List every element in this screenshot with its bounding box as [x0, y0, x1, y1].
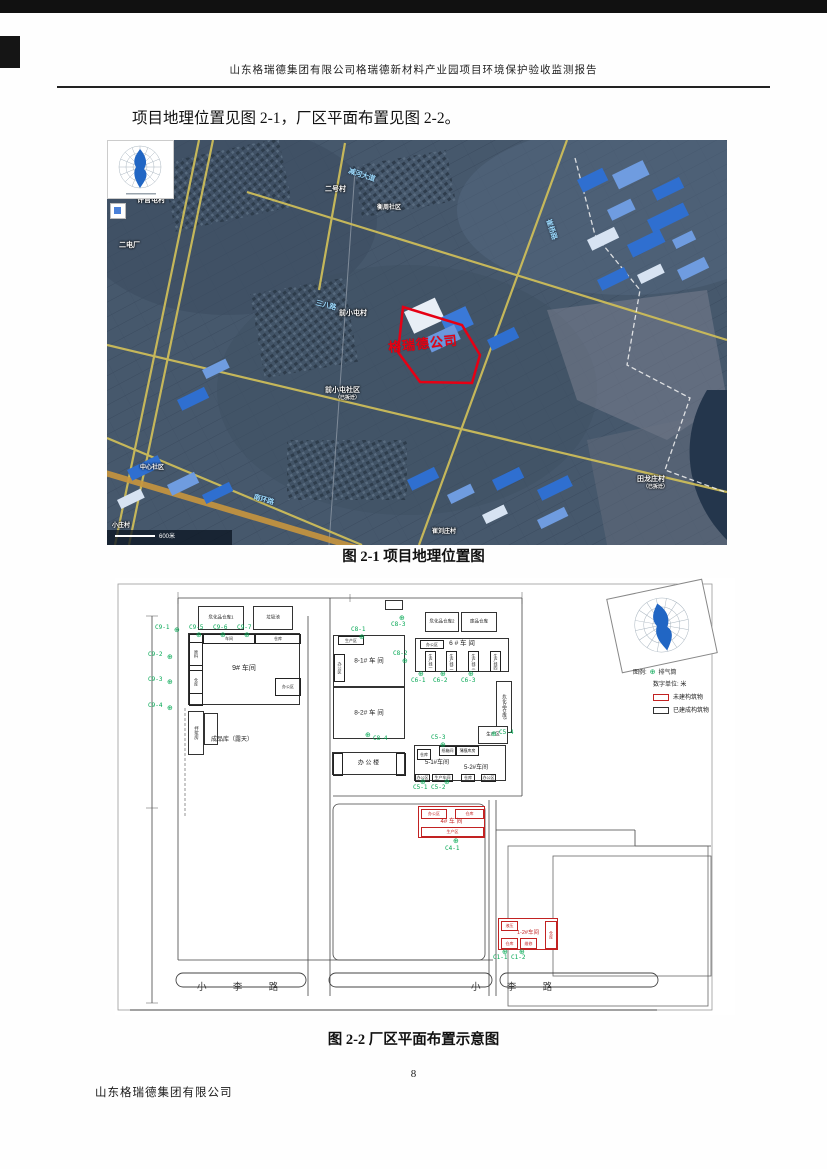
building-room: 办公区 [420, 640, 444, 649]
building-room: 仓库 [255, 634, 301, 644]
road-name-right: 小 李 路 [471, 979, 564, 993]
stack-icon: ⊕ [402, 658, 408, 665]
stack-icon: ⊕ [167, 654, 173, 661]
building-room: 仓库 [545, 921, 557, 949]
plan-building [385, 600, 403, 610]
stack-icon: ⊕ [244, 632, 250, 639]
building-label: 废品仓库 [462, 620, 496, 625]
stack-icon: ⊕ [196, 632, 202, 639]
header-rule [57, 86, 770, 88]
page-header: 山东格瑞德集团有限公司格瑞德新材料产业园项目环境保护验收监测报告 [0, 62, 827, 77]
map-label: 三八路 [315, 298, 338, 313]
map-label: 格瑞德公司 [387, 330, 459, 356]
legend-red-swatch [653, 694, 669, 701]
plan-building: 8-1# 车 间生产区办公区 [333, 635, 405, 687]
building-room: 仓库 [461, 774, 475, 782]
building-room: 仓库 [455, 809, 484, 819]
monitor-point-label: C5-4 [499, 729, 513, 736]
monitor-point-label: C8-4 [373, 735, 387, 742]
map-label: 二号村 [325, 184, 346, 194]
stack-icon: ⊕ [468, 671, 474, 678]
map-label: （已拆迁） [335, 394, 360, 401]
building-room: 生产线四 [490, 651, 501, 672]
scale-text: 600米 [159, 534, 175, 540]
scan-artifact-topbar [0, 0, 827, 13]
stack-icon: ⊕ [453, 838, 459, 845]
plan-text-label: 5-1#车间 [425, 757, 449, 766]
stack-icon: ⊕ [174, 627, 180, 634]
monitor-point-label: C6-3 [461, 677, 475, 684]
monitor-point-label: C8-3 [391, 621, 405, 628]
stack-icon: ⊕ [650, 669, 656, 676]
map-label: 小庄村 [112, 520, 130, 529]
intro-paragraph: 项目地理位置见图 2-1，厂区平面布置见图 2-2。 [132, 106, 460, 128]
map-label: 南环路 [252, 492, 275, 507]
map-label: （已拆迁） [643, 483, 668, 490]
monitor-point-label: C9-3 [148, 676, 162, 683]
building-room: 办公区 [421, 809, 447, 819]
road-name-left: 小 李 路 [197, 979, 290, 993]
building-room: 生产线三 [468, 651, 479, 672]
stack-icon: ⊕ [220, 632, 226, 639]
legend-black-swatch [653, 707, 669, 714]
building-room: 仓库 [189, 670, 203, 694]
stack-icon: ⊕ [420, 779, 426, 786]
plan-building: 垃圾池 [253, 606, 293, 630]
building-label: 9# 车间 [189, 665, 299, 673]
building-room [396, 753, 406, 776]
map-label: 衡周社区 [377, 202, 401, 211]
stack-icon: ⊕ [440, 742, 446, 749]
page-footer: 山东格瑞德集团有限公司 [95, 1084, 233, 1100]
building-room: 薄膜库房 [456, 746, 479, 756]
monitor-point-label: C9-7 [237, 624, 251, 631]
monitor-point-label: C9-6 [213, 624, 227, 631]
building-room: 办公区 [334, 654, 345, 682]
map-label: 二电厂 [119, 240, 140, 250]
monitor-point-label: C9-4 [148, 702, 162, 709]
plan-text-label: 成品库（露天） [211, 734, 253, 743]
building-label: 危化品仓库1 [199, 616, 243, 621]
figure2-caption: 图 2-2 厂区平面布置示意图 [0, 1028, 827, 1049]
map-labels-layer: 许官屯村二电厂二号村衡周社区前小屯村前小屯社区（已拆迁）中心社区田龙庄村（已拆迁… [107, 140, 727, 545]
building-room: 原料 [189, 642, 203, 666]
stack-icon: ⊕ [167, 705, 173, 712]
plan-building: 6 # 车 间办公区生产线一生产线二生产线三生产线四 [415, 638, 509, 672]
stack-icon: ⊕ [365, 732, 371, 739]
plan-building: 4# 车 间办公区仓库生产区 [418, 806, 485, 838]
stack-icon: ⊕ [519, 949, 525, 956]
plan-text-label: 5-2#车间 [464, 762, 488, 771]
map-layer-button [110, 203, 126, 219]
figure-location-map: 600米 许官屯村二电厂二号村衡周社区前小屯村前小屯社区（已拆迁）中心社区田龙庄… [107, 140, 727, 545]
figure1-caption: 图 2-1 项目地理位置图 [0, 545, 827, 566]
building-room: 生产线一 [425, 651, 436, 672]
building-room: 办公区 [481, 774, 496, 782]
legend-black-label: 已建成构筑物 [673, 708, 709, 714]
map-label: 崔杨路 [543, 218, 559, 241]
building-label: 4# 车 间 [419, 819, 484, 826]
plan-legend: 图例:⊕排气筒 数字单位: 米 未建构筑物 已建成构筑物 [633, 666, 709, 718]
building-room: 液压 [501, 921, 518, 931]
monitor-point-label: C4-1 [445, 845, 459, 852]
page-number: 8 [0, 1068, 827, 1080]
stack-icon: ⊕ [359, 634, 365, 641]
building-room: 生产区 [421, 827, 484, 837]
building-room: 办公区 [275, 678, 301, 696]
plan-building: 1-2#车间液压仓库维修仓库 [498, 918, 558, 950]
building-room: 生产线二 [446, 651, 457, 672]
plan-building: 办 公 楼 [332, 752, 405, 775]
stack-icon: ⊕ [491, 731, 497, 738]
map-label: 中心社区 [140, 462, 164, 471]
plan-building: 9# 车间原料仓库车间仓库办公区 [188, 633, 300, 705]
stack-icon: ⊕ [418, 671, 424, 678]
stack-icon: ⊕ [502, 949, 508, 956]
building-label: 垃圾池 [254, 616, 292, 621]
building-room [333, 753, 343, 776]
monitor-point-label: C6-2 [433, 677, 447, 684]
map-label: 减河大道 [347, 166, 377, 184]
legend-unit: 数字单位: 米 [633, 679, 709, 692]
monitor-point-label: C5-3 [431, 734, 445, 741]
monitor-point-label: C8-1 [351, 626, 365, 633]
plan-building: 危化品仓库2 [425, 612, 459, 632]
map-label: 前小屯村 [339, 308, 367, 318]
legend-title: 图例: [633, 670, 647, 676]
monitor-point-label: C5-1 C5-2 [413, 784, 446, 791]
building-label: 办 公 楼 [333, 760, 404, 767]
document-page: 山东格瑞德集团有限公司格瑞德新材料产业园项目环境保护验收监测报告 项目地理位置见… [0, 0, 827, 1169]
monitor-point-label: C9-2 [148, 651, 162, 658]
map-scale-bar: 600米 [107, 530, 232, 545]
building-label: 危化品仓库3 [502, 694, 507, 719]
monitor-point-label: C8-2 [393, 650, 407, 657]
building-label: 8-2# 车 间 [334, 709, 404, 716]
building-label: 危化品仓库2 [426, 620, 458, 625]
stack-icon: ⊕ [444, 779, 450, 786]
plan-building: 废品仓库 [461, 612, 497, 632]
legend-red-label: 未建构筑物 [673, 695, 703, 701]
monitor-point-label: C9-1 [155, 624, 169, 631]
wind-rose [107, 140, 174, 199]
monitor-point-label: C9-5 [189, 624, 203, 631]
plan-building: 拌浆房 [188, 711, 204, 755]
stack-icon: ⊕ [440, 671, 446, 678]
stack-icon: ⊕ [399, 615, 405, 622]
monitor-point-label: C6-1 [411, 677, 425, 684]
legend-stack-label: 排气筒 [659, 670, 677, 676]
figure-plant-layout: 危化品仓库1垃圾池9# 车间原料仓库车间仓库办公区拌浆房8-1# 车 间生产区办… [115, 578, 735, 1015]
building-label: 拌浆房 [194, 726, 199, 740]
stack-icon: ⊕ [167, 679, 173, 686]
map-label: 崔刘庄村 [432, 526, 456, 535]
